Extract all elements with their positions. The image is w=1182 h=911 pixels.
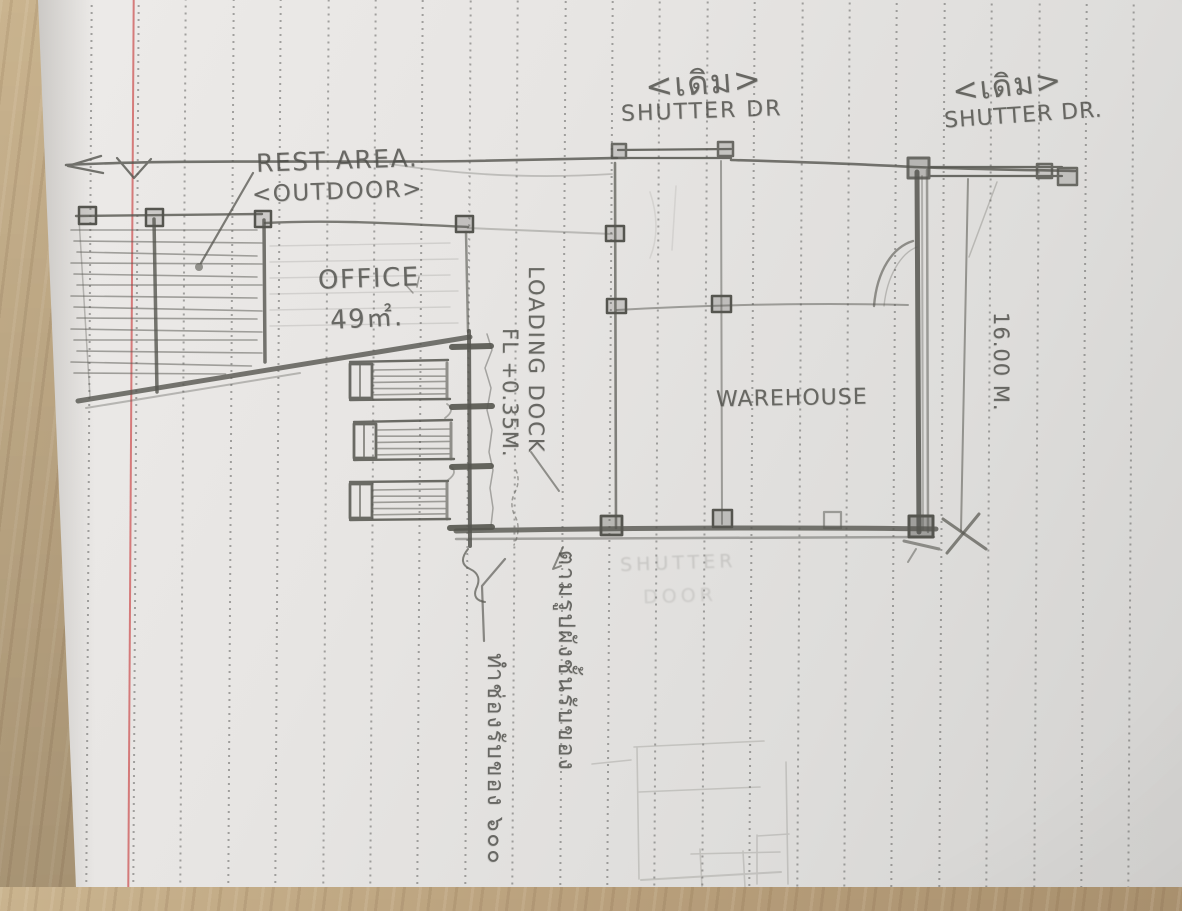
pencil-hatch-line: [378, 429, 449, 430]
label-warehouse: WAREHOUSE: [716, 385, 868, 413]
pencil-hatch-line: [374, 381, 445, 382]
pencil-hatch-line: [270, 259, 458, 262]
pencil-hatch-line: [374, 394, 445, 395]
label-dimension-16m: 16.00 M.: [989, 312, 1013, 412]
pencil-hatch-line: [77, 351, 262, 353]
pencil-hatch-line: [374, 369, 445, 370]
label-loading-dock: LOADING DOCK: [524, 266, 548, 454]
pencil-hatch-line: [378, 454, 449, 455]
label-thai-dock-note: ตามรูปผังชั้นรับของ: [548, 550, 584, 772]
pencil-hatch-line: [71, 329, 262, 332]
dock-levelers: [350, 360, 454, 520]
dock-bumper: [452, 406, 492, 407]
label-rest-area: REST AREA.: [256, 143, 419, 178]
shutter-door-mid: [612, 142, 733, 158]
paper-sheet: <เดิม> SHUTTER DR <เดิม> SHUTTER DR. RES…: [0, 0, 1182, 887]
pencil-hatch-line: [378, 441, 449, 442]
x-mark: [947, 514, 979, 553]
dock-bumper: [452, 466, 491, 467]
label-erased-door: DOOR: [643, 584, 717, 609]
label-erased-shutter: SHUTTER: [620, 550, 737, 576]
label-office-area: 49㎡.: [329, 296, 404, 337]
label-floor-level: FL +0.35M.: [498, 328, 522, 458]
pencil-hatch-line: [71, 263, 262, 264]
sketch-svg: [0, 0, 1182, 887]
check-mark: [117, 158, 151, 178]
pencil-hatch-line: [71, 362, 251, 366]
pencil-hatch-line: [71, 296, 257, 298]
rest-area-hatch: [71, 230, 262, 374]
pencil-hatch-line: [374, 514, 445, 515]
pencil-hatch-line: [374, 501, 445, 502]
pencil-hatch-line: [74, 373, 226, 374]
photo-of-sketch: { "scene": { "description": "Hand-drawn …: [0, 0, 1182, 887]
pencil-hatch-line: [77, 318, 257, 319]
dock-bumper: [450, 527, 492, 528]
rest-area-structure: [71, 207, 470, 408]
label-thai-opening-note: ทำช่องรับของ ๖๐๐: [477, 653, 513, 865]
label-office: OFFICE: [318, 262, 421, 296]
pencil-hatch-line: [270, 243, 450, 246]
pencil-hatch-line: [77, 252, 257, 256]
door-swing-arc: [874, 241, 913, 306]
pencil-hatch-line: [374, 489, 445, 490]
shutter-door-right: [908, 158, 1077, 185]
dock-bumper: [452, 346, 491, 347]
pencil-hatch-line: [74, 307, 262, 311]
pencil-hatch-line: [74, 241, 262, 243]
pencil-hatch-line: [74, 274, 257, 277]
